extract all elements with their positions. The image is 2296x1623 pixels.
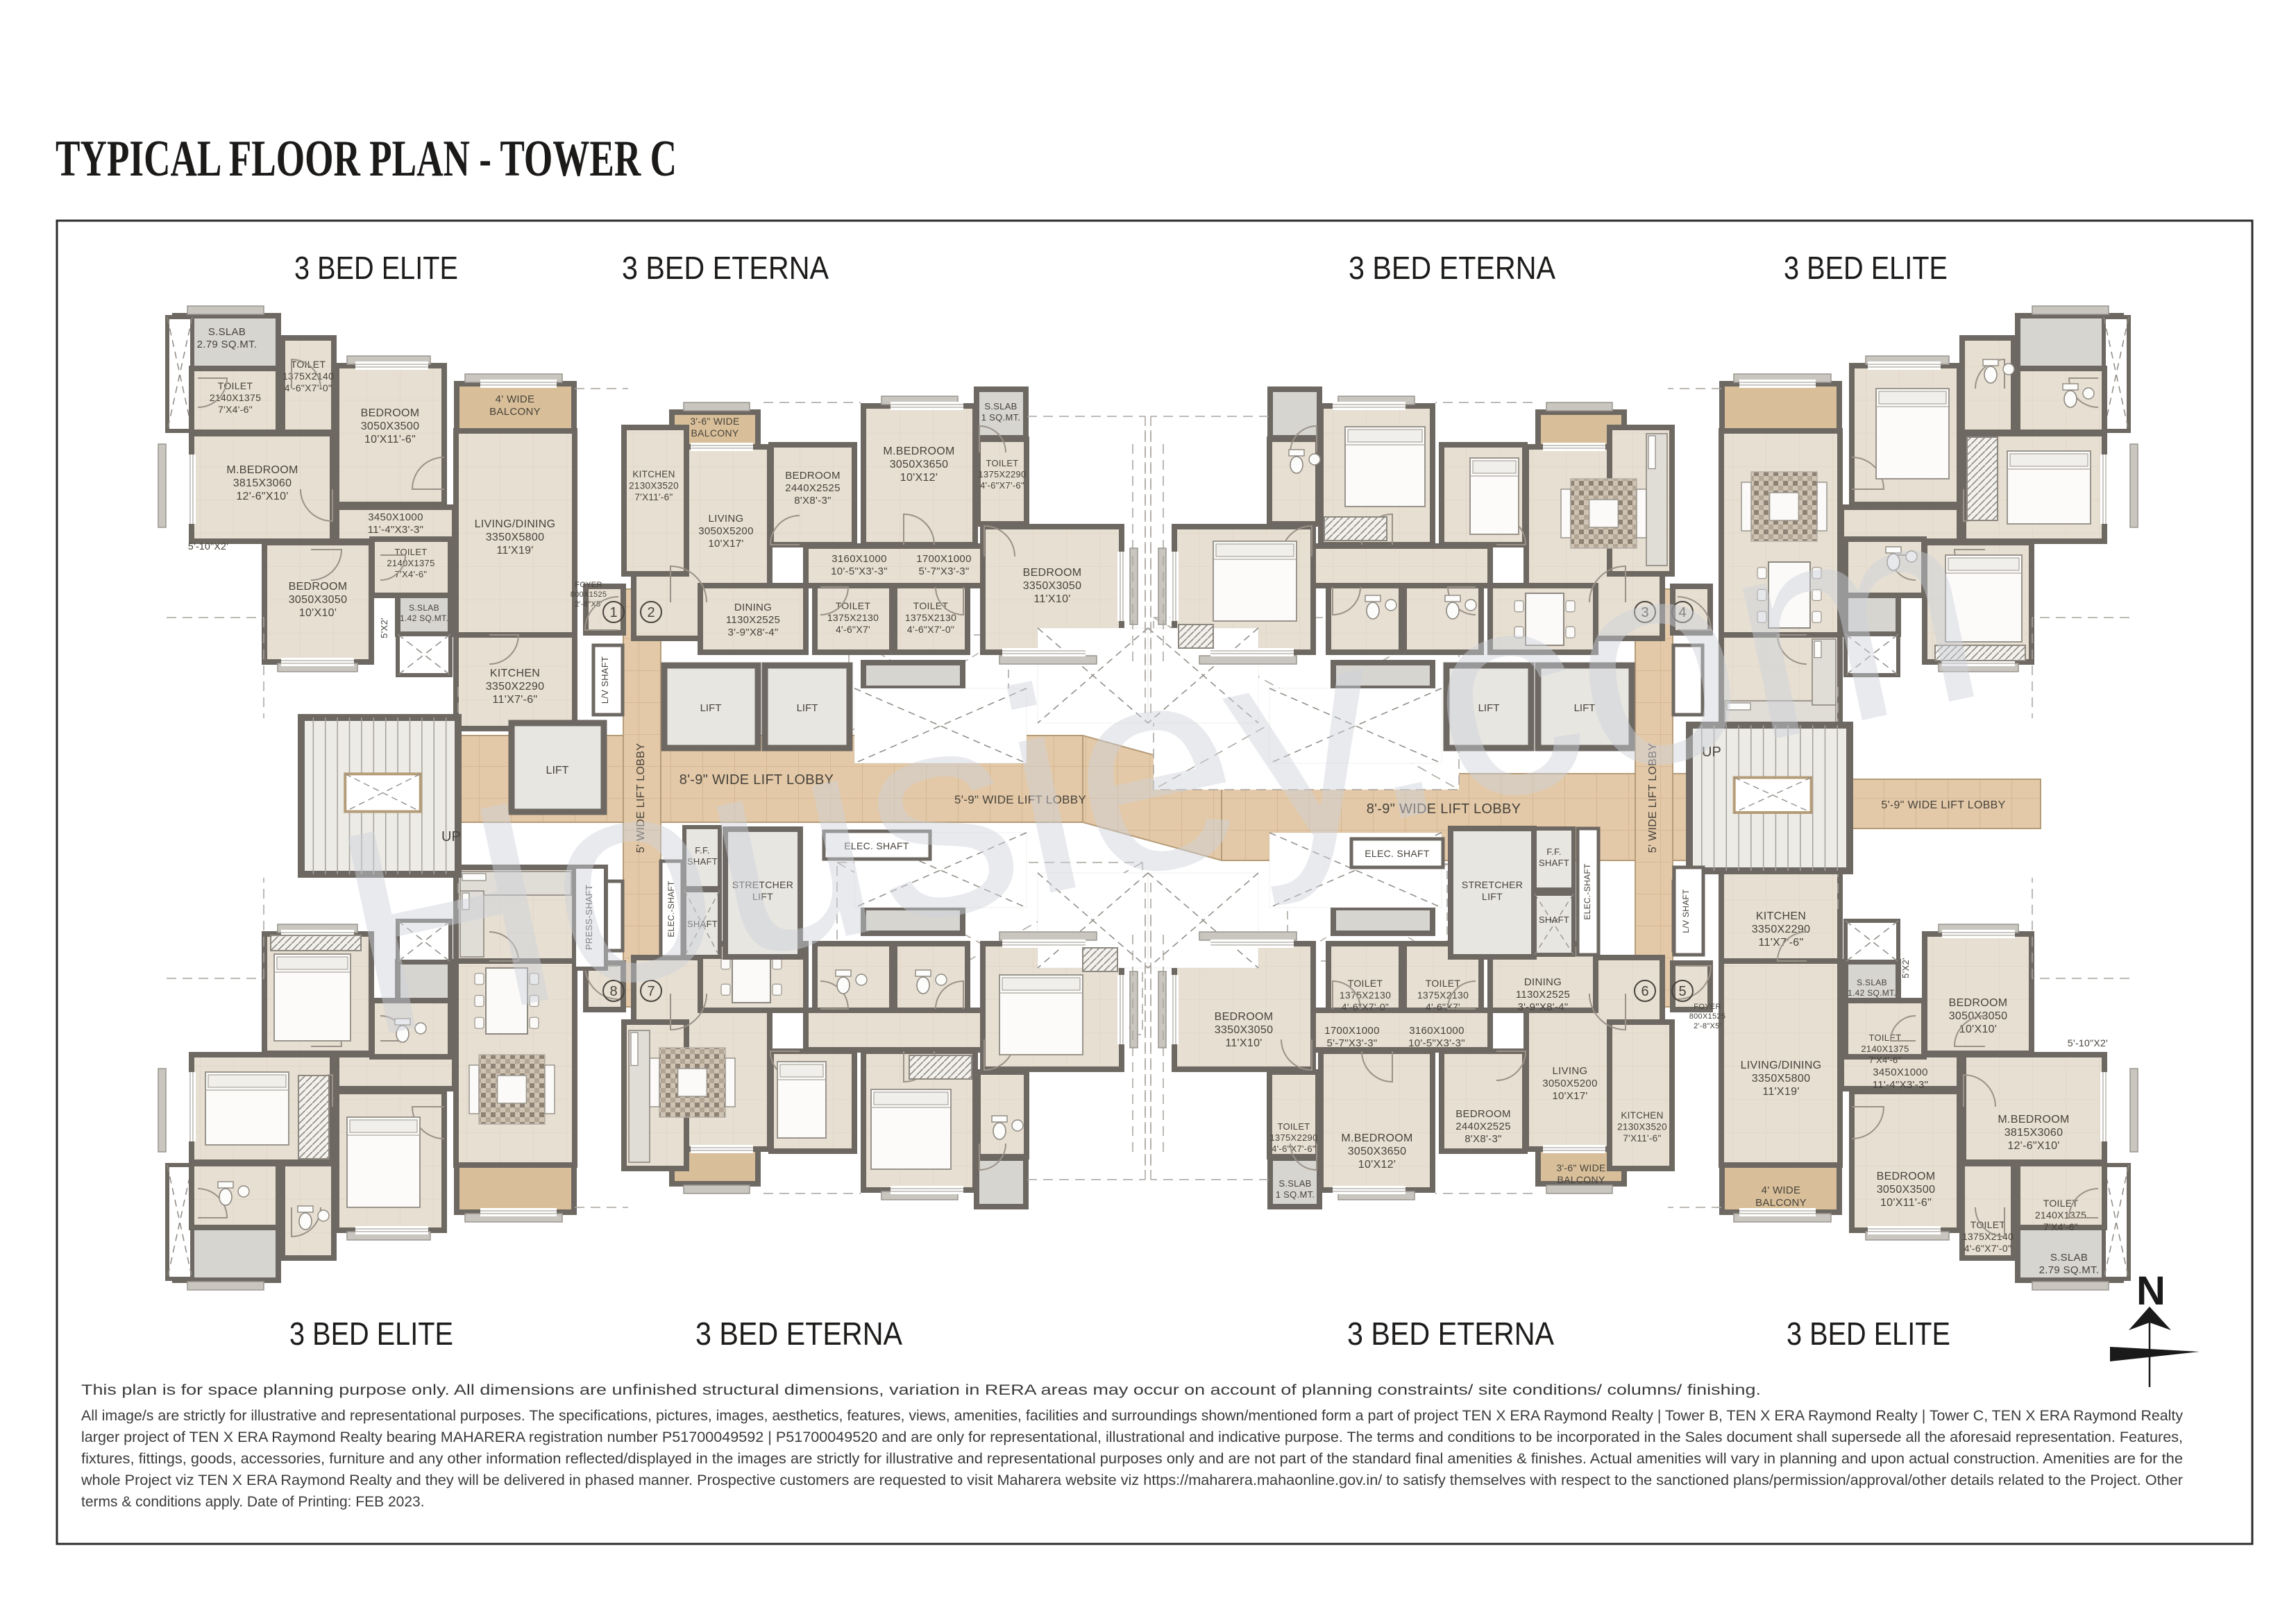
svg-text:11'X7'-6": 11'X7'-6" bbox=[493, 694, 538, 706]
svg-text:3160X1000: 3160X1000 bbox=[1409, 1025, 1464, 1037]
svg-text:2130X3520: 2130X3520 bbox=[629, 481, 679, 491]
svg-text:11'-4"X3'-3": 11'-4"X3'-3" bbox=[368, 524, 424, 536]
svg-text:BEDROOM: BEDROOM bbox=[1215, 1011, 1274, 1023]
svg-text:11'X10': 11'X10' bbox=[1033, 593, 1070, 605]
svg-text:M.BEDROOM: M.BEDROOM bbox=[1998, 1114, 2069, 1125]
svg-text:4'-6"X7'-6": 4'-6"X7'-6" bbox=[980, 480, 1024, 491]
svg-text:M.BEDROOM: M.BEDROOM bbox=[226, 464, 298, 476]
svg-text:BALCONY: BALCONY bbox=[1557, 1174, 1605, 1185]
svg-text:3815X3060: 3815X3060 bbox=[2004, 1127, 2063, 1139]
svg-text:2140X1375: 2140X1375 bbox=[1861, 1044, 1909, 1054]
svg-text:6: 6 bbox=[1641, 984, 1648, 999]
svg-text:7'X4'-6": 7'X4'-6" bbox=[1869, 1055, 1902, 1065]
svg-text:2130X3520: 2130X3520 bbox=[1617, 1122, 1667, 1132]
svg-text:5'-7"X3'-3": 5'-7"X3'-3" bbox=[1326, 1037, 1377, 1049]
svg-text:8'X8'-3": 8'X8'-3" bbox=[1464, 1133, 1501, 1145]
svg-text:1 SQ.MT.: 1 SQ.MT. bbox=[981, 412, 1021, 423]
svg-text:BEDROOM: BEDROOM bbox=[785, 470, 841, 482]
svg-text:4'-6"X7'-0": 4'-6"X7'-0" bbox=[1964, 1243, 2011, 1254]
svg-text:1700X1000: 1700X1000 bbox=[916, 553, 971, 565]
svg-text:4'-6"X7'-0": 4'-6"X7'-0" bbox=[1342, 1001, 1389, 1012]
svg-text:fixtures, fittings, goods, acc: fixtures, fittings, goods, accessories, … bbox=[81, 1451, 2183, 1467]
svg-text:3050X3500: 3050X3500 bbox=[361, 420, 420, 432]
svg-text:10'X10': 10'X10' bbox=[299, 607, 337, 619]
svg-text:larger project of TEN X ERA Ra: larger project of TEN X ERA Raymond Real… bbox=[81, 1429, 2183, 1445]
svg-text:3350X3050: 3350X3050 bbox=[1023, 580, 1082, 592]
svg-text:TOILET: TOILET bbox=[1970, 1219, 2006, 1230]
svg-text:10'-5"X3'-3": 10'-5"X3'-3" bbox=[831, 566, 888, 577]
svg-text:1700X1000: 1700X1000 bbox=[1324, 1025, 1379, 1037]
svg-text:10'X17': 10'X17' bbox=[708, 538, 743, 550]
svg-text:1375X2140: 1375X2140 bbox=[282, 371, 334, 382]
svg-text:3350X5800: 3350X5800 bbox=[486, 532, 545, 543]
svg-text:3 BED ETERNA: 3 BED ETERNA bbox=[1347, 1316, 1554, 1352]
svg-text:11'X19': 11'X19' bbox=[496, 545, 533, 556]
svg-text:3'-9"X8'-4": 3'-9"X8'-4" bbox=[727, 627, 778, 638]
svg-text:4'-6"X7'-0": 4'-6"X7'-0" bbox=[907, 624, 954, 635]
svg-text:DINING: DINING bbox=[734, 602, 772, 613]
svg-text:3050X5200: 3050X5200 bbox=[1542, 1078, 1597, 1089]
svg-text:3160X1000: 3160X1000 bbox=[832, 553, 886, 565]
svg-text:5'X2': 5'X2' bbox=[1900, 958, 1911, 978]
svg-text:1375X2290: 1375X2290 bbox=[1269, 1132, 1317, 1143]
svg-text:3815X3060: 3815X3060 bbox=[233, 477, 292, 489]
svg-text:KITCHEN: KITCHEN bbox=[1756, 910, 1806, 922]
svg-text:2140X1375: 2140X1375 bbox=[210, 392, 261, 403]
svg-text:LIFT: LIFT bbox=[1482, 891, 1503, 902]
svg-text:1375X2130: 1375X2130 bbox=[1340, 989, 1391, 1001]
svg-text:3350X2290: 3350X2290 bbox=[486, 681, 545, 692]
svg-text:3050X3500: 3050X3500 bbox=[1877, 1184, 1936, 1196]
svg-text:S.SLAB: S.SLAB bbox=[1857, 978, 1887, 987]
svg-text:LIVING: LIVING bbox=[709, 513, 744, 525]
svg-text:8'X8'-3": 8'X8'-3" bbox=[794, 495, 831, 507]
svg-text:KITCHEN: KITCHEN bbox=[1621, 1110, 1663, 1121]
svg-text:BEDROOM: BEDROOM bbox=[1455, 1108, 1511, 1120]
svg-text:1130X2525: 1130X2525 bbox=[726, 614, 780, 626]
svg-text:7'X11'-6": 7'X11'-6" bbox=[1623, 1133, 1661, 1144]
svg-text:2.79 SQ.MT.: 2.79 SQ.MT. bbox=[197, 339, 258, 350]
svg-text:TOILET: TOILET bbox=[1277, 1121, 1310, 1132]
svg-text:10'-5"X3'-3": 10'-5"X3'-3" bbox=[1408, 1037, 1465, 1049]
svg-text:10'X11'-6": 10'X11'-6" bbox=[364, 434, 416, 445]
svg-text:3050X5200: 3050X5200 bbox=[698, 525, 753, 537]
svg-text:LIVING: LIVING bbox=[1553, 1065, 1588, 1077]
svg-text:4'-6"X7'-6": 4'-6"X7'-6" bbox=[1272, 1144, 1316, 1154]
svg-text:LIVING/DINING: LIVING/DINING bbox=[475, 518, 556, 530]
svg-text:10'X12': 10'X12' bbox=[900, 472, 938, 484]
svg-text:11'X19': 11'X19' bbox=[1762, 1086, 1799, 1098]
svg-text:3 BED ETERNA: 3 BED ETERNA bbox=[695, 1316, 902, 1352]
svg-text:TOILET: TOILET bbox=[986, 458, 1018, 468]
svg-text:3 BED ETERNA: 3 BED ETERNA bbox=[622, 250, 829, 286]
svg-text:5'X2': 5'X2' bbox=[379, 618, 389, 638]
svg-text:7'X11'-6": 7'X11'-6" bbox=[634, 492, 673, 502]
svg-text:S.SLAB: S.SLAB bbox=[208, 326, 246, 338]
svg-text:L/V SHAFT: L/V SHAFT bbox=[1681, 889, 1691, 933]
svg-text:3'-6" WIDE: 3'-6" WIDE bbox=[1556, 1162, 1605, 1173]
svg-text:3450X1000: 3450X1000 bbox=[368, 511, 423, 523]
svg-text:11'X10': 11'X10' bbox=[1225, 1037, 1262, 1049]
svg-text:4'-6"X7': 4'-6"X7' bbox=[836, 624, 870, 635]
svg-text:TOILET: TOILET bbox=[1348, 978, 1383, 989]
svg-text:10'X17': 10'X17' bbox=[1552, 1090, 1587, 1102]
svg-text:TOILET: TOILET bbox=[1426, 978, 1461, 989]
svg-text:12'-6"X10': 12'-6"X10' bbox=[2007, 1140, 2059, 1152]
svg-text:3350X2290: 3350X2290 bbox=[1752, 924, 1811, 935]
svg-text:BEDROOM: BEDROOM bbox=[361, 407, 420, 419]
svg-text:BALCONY: BALCONY bbox=[691, 427, 738, 439]
svg-text:terms & conditions apply. Date: terms & conditions apply. Date of Printi… bbox=[81, 1494, 425, 1510]
svg-text:4' WIDE: 4' WIDE bbox=[1762, 1184, 1801, 1196]
svg-text:LIVING/DINING: LIVING/DINING bbox=[1741, 1060, 1822, 1071]
svg-text:2140X1375: 2140X1375 bbox=[387, 558, 434, 568]
svg-text:10'X11'-6": 10'X11'-6" bbox=[1880, 1197, 1932, 1209]
svg-text:10'X10': 10'X10' bbox=[1959, 1023, 1997, 1035]
svg-text:2140X1375: 2140X1375 bbox=[2035, 1209, 2086, 1221]
svg-text:M.BEDROOM: M.BEDROOM bbox=[1341, 1132, 1412, 1144]
svg-text:3'-9"X8'-4": 3'-9"X8'-4" bbox=[1517, 1001, 1568, 1013]
svg-text:3050X3650: 3050X3650 bbox=[890, 459, 949, 470]
svg-text:1.42 SQ.MT.: 1.42 SQ.MT. bbox=[400, 613, 448, 623]
svg-text:5'-9" WIDE LIFT LOBBY: 5'-9" WIDE LIFT LOBBY bbox=[1881, 799, 2005, 811]
svg-text:2: 2 bbox=[647, 605, 655, 620]
svg-text:FOYER: FOYER bbox=[1694, 1003, 1721, 1011]
svg-text:11'-4"X3'-3": 11'-4"X3'-3" bbox=[1873, 1079, 1929, 1091]
svg-text:BEDROOM: BEDROOM bbox=[1023, 567, 1082, 579]
svg-text:4'-6"X7': 4'-6"X7' bbox=[1426, 1001, 1460, 1012]
svg-text:7'X4'-6": 7'X4'-6" bbox=[2043, 1221, 2078, 1232]
svg-text:2'-8"X5': 2'-8"X5' bbox=[1694, 1022, 1721, 1030]
svg-text:BALCONY: BALCONY bbox=[489, 406, 541, 418]
svg-text:1 SQ.MT.: 1 SQ.MT. bbox=[1276, 1189, 1315, 1200]
svg-text:2440X2525: 2440X2525 bbox=[1455, 1121, 1510, 1132]
svg-text:All image/s are strictly for i: All image/s are strictly for illustrativ… bbox=[81, 1408, 2184, 1424]
svg-text:L/V SHAFT: L/V SHAFT bbox=[600, 656, 610, 704]
svg-text:1375X2140: 1375X2140 bbox=[1962, 1231, 2014, 1242]
svg-text:2440X2525: 2440X2525 bbox=[785, 482, 840, 494]
svg-text:3350X3050: 3350X3050 bbox=[1215, 1024, 1274, 1036]
svg-text:1375X2130: 1375X2130 bbox=[905, 612, 956, 623]
svg-text:3 BED ELITE: 3 BED ELITE bbox=[1787, 1316, 1950, 1352]
svg-text:800X1525: 800X1525 bbox=[1689, 1012, 1726, 1021]
svg-text:ELEC.-SHAFT: ELEC.-SHAFT bbox=[1582, 863, 1592, 920]
svg-text:KITCHEN: KITCHEN bbox=[490, 668, 540, 679]
svg-text:SHAFT: SHAFT bbox=[1539, 915, 1569, 925]
svg-text:3050X3650: 3050X3650 bbox=[1348, 1146, 1407, 1157]
svg-text:DINING: DINING bbox=[1524, 976, 1562, 988]
svg-text:FOYER: FOYER bbox=[575, 581, 602, 589]
svg-text:KITCHEN: KITCHEN bbox=[632, 469, 675, 479]
svg-text:BEDROOM: BEDROOM bbox=[1877, 1171, 1936, 1182]
svg-text:SHAFT: SHAFT bbox=[1539, 858, 1569, 868]
svg-text:3450X1000: 3450X1000 bbox=[1873, 1067, 1927, 1078]
svg-text:S.SLAB: S.SLAB bbox=[409, 603, 439, 613]
svg-text:whole Project viz TEN X ERA Ra: whole Project viz TEN X ERA Raymond Real… bbox=[81, 1472, 2183, 1488]
svg-text:STRETCHER: STRETCHER bbox=[1462, 879, 1523, 890]
svg-text:12'-6"X10': 12'-6"X10' bbox=[236, 491, 288, 502]
svg-text:This plan is for space plannin: This plan is for space planning purpose … bbox=[81, 1382, 1761, 1398]
svg-text:1: 1 bbox=[609, 605, 617, 620]
svg-text:M.BEDROOM: M.BEDROOM bbox=[883, 445, 954, 457]
svg-text:5: 5 bbox=[1678, 984, 1686, 999]
svg-text:3 BED ELITE: 3 BED ELITE bbox=[294, 250, 458, 286]
svg-text:5'-7"X3'-3": 5'-7"X3'-3" bbox=[918, 566, 969, 577]
svg-text:1375X2130: 1375X2130 bbox=[1417, 989, 1469, 1001]
svg-text:S.SLAB: S.SLAB bbox=[2050, 1252, 2088, 1264]
svg-text:2.79 SQ.MT.: 2.79 SQ.MT. bbox=[2039, 1264, 2100, 1276]
svg-text:800X1525: 800X1525 bbox=[571, 590, 607, 599]
svg-text:5'-10"X2': 5'-10"X2' bbox=[188, 541, 228, 552]
svg-text:N: N bbox=[2136, 1268, 2166, 1314]
svg-text:BALCONY: BALCONY bbox=[1755, 1197, 1807, 1209]
svg-text:BEDROOM: BEDROOM bbox=[289, 581, 348, 593]
svg-text:S.SLAB: S.SLAB bbox=[1278, 1178, 1311, 1189]
svg-text:3 BED ELITE: 3 BED ELITE bbox=[1784, 250, 1948, 286]
svg-text:4' WIDE: 4' WIDE bbox=[496, 393, 535, 405]
svg-text:3 BED ETERNA: 3 BED ETERNA bbox=[1349, 250, 1555, 286]
svg-text:1375X2130: 1375X2130 bbox=[827, 612, 879, 623]
svg-text:BEDROOM: BEDROOM bbox=[1949, 997, 2008, 1009]
svg-text:TYPICAL FLOOR PLAN - TOWER C: TYPICAL FLOOR PLAN - TOWER C bbox=[56, 130, 677, 187]
svg-text:5'-10"X2': 5'-10"X2' bbox=[2068, 1037, 2108, 1048]
svg-text:1.42 SQ.MT.: 1.42 SQ.MT. bbox=[1848, 988, 1896, 998]
svg-text:7'X4'-6": 7'X4'-6" bbox=[218, 404, 253, 415]
svg-text:3'-6" WIDE: 3'-6" WIDE bbox=[690, 416, 739, 427]
svg-text:TOILET: TOILET bbox=[218, 380, 253, 391]
svg-text:1375X2290: 1375X2290 bbox=[978, 469, 1026, 479]
svg-text:S.SLAB: S.SLAB bbox=[984, 401, 1017, 411]
svg-text:3 BED ELITE: 3 BED ELITE bbox=[289, 1316, 453, 1352]
svg-text:1130X2525: 1130X2525 bbox=[1516, 989, 1570, 1001]
svg-text:3350X5800: 3350X5800 bbox=[1752, 1073, 1811, 1085]
svg-text:10'X12': 10'X12' bbox=[1358, 1159, 1396, 1171]
svg-text:3050X3050: 3050X3050 bbox=[289, 594, 348, 606]
